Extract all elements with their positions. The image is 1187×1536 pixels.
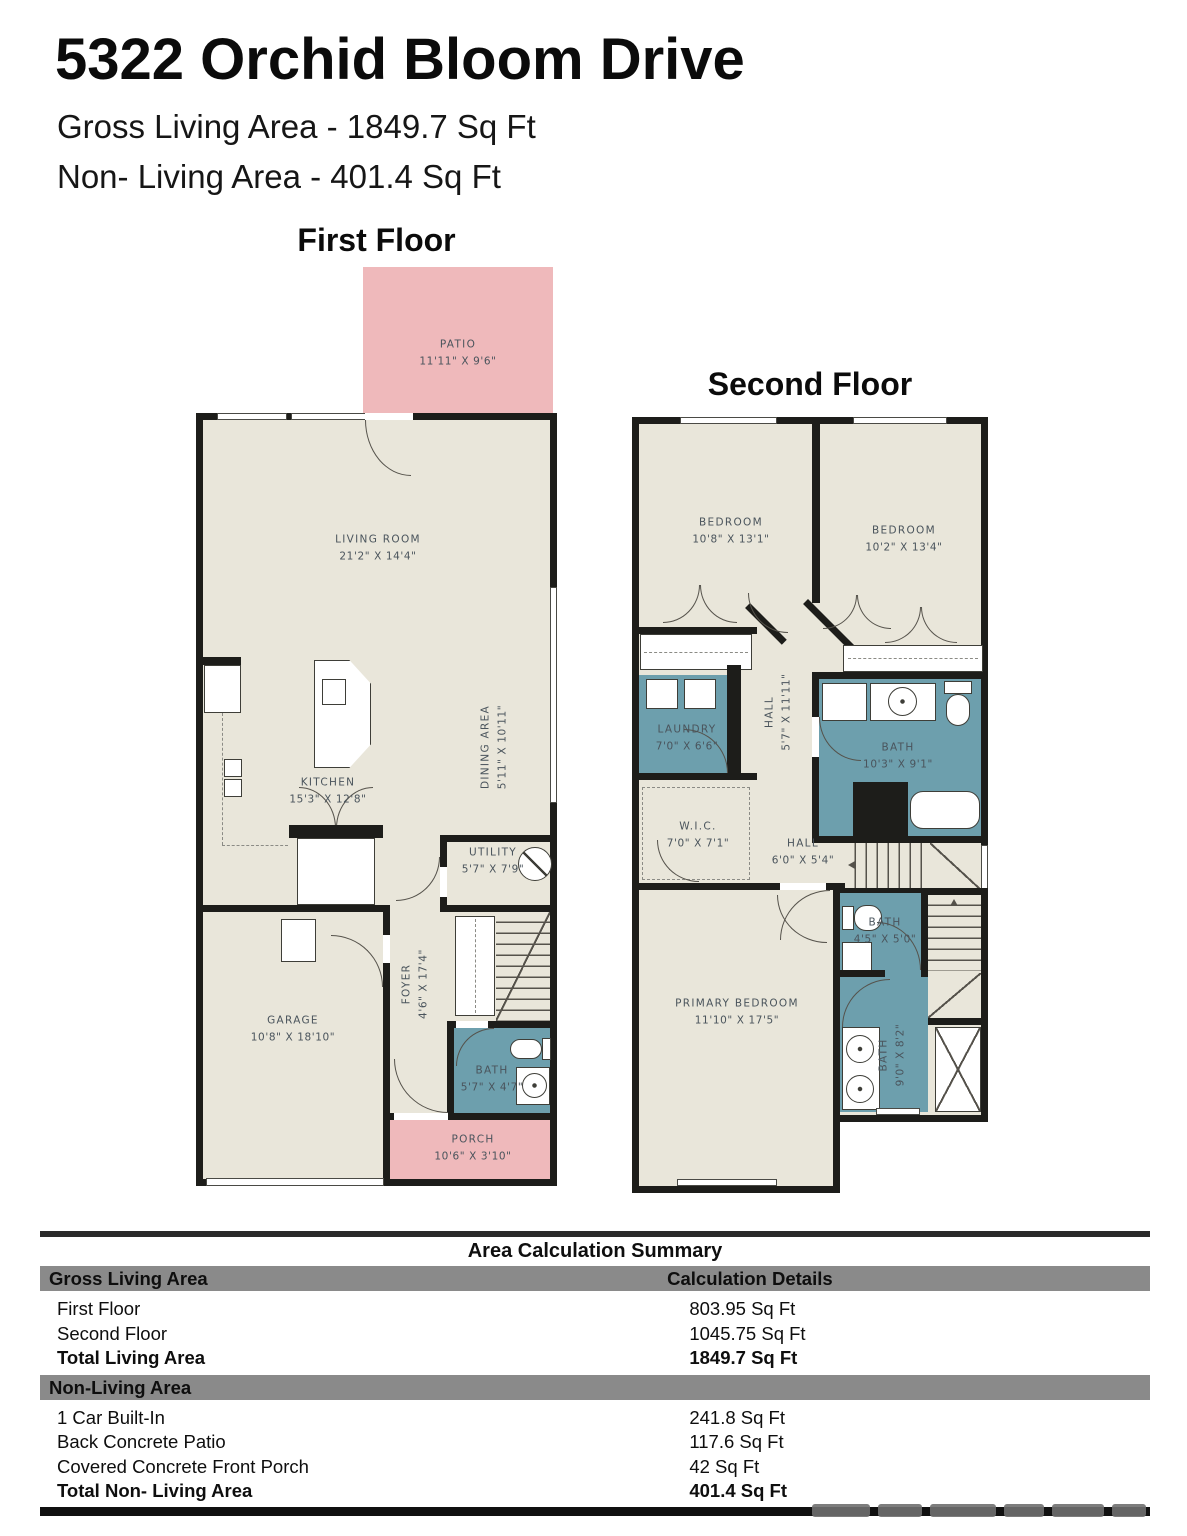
wall [812, 836, 988, 843]
table-row: Second Floor 1045.75 Sq Ft [40, 1322, 1150, 1347]
counter-dash-line [222, 713, 223, 845]
table-row: First Floor 803.95 Sq Ft [40, 1297, 1150, 1322]
room-label-foyer: FOYER 4'6" X 17'4" [402, 949, 429, 1019]
sink-icon [522, 1073, 547, 1098]
table-row: 1 Car Built-In 241.8 Sq Ft [40, 1406, 1150, 1431]
stove-icon [224, 779, 242, 797]
sink-icon [846, 1035, 874, 1063]
details-header: Calculation Details [667, 1266, 833, 1291]
page-title: 5322 Orchid Bloom Drive [55, 26, 745, 93]
room-label-dining-area: DINING AREA 5'11" X 10'11" [481, 705, 508, 789]
wall [196, 657, 241, 665]
table-row-total-non-living: Total Non- Living Area 401.4 Sq Ft [40, 1479, 1150, 1504]
table-row-total-living: Total Living Area 1849.7 Sq Ft [40, 1346, 1150, 1371]
room-label-hall-lower: HALL 6'0" X 5'4" [772, 839, 835, 866]
room-label-garage: GARAGE 10'8" X 18'10" [251, 1016, 335, 1043]
room-label-bedroom-left: BEDROOM 10'8" X 13'1" [692, 518, 769, 545]
peninsula-counter-icon [297, 838, 375, 905]
first-floor-heading: First Floor [196, 222, 557, 259]
wall [440, 835, 557, 842]
wall [812, 417, 820, 603]
sink-icon [888, 687, 917, 716]
footprint-notch [840, 1122, 988, 1193]
room-label-bath: BATH 5'7" X 4'7" [461, 1066, 524, 1093]
window-icon [550, 587, 557, 803]
front-door-opening [394, 1113, 448, 1120]
watermark [1112, 1504, 1146, 1517]
second-floor-plan: BEDROOM 10'8" X 13'1" BEDROOM 10'2" X 13… [632, 417, 988, 1193]
garage-door-icon [206, 1178, 384, 1186]
bathtub-icon [910, 791, 980, 829]
sink-icon [846, 1075, 874, 1103]
watermark [930, 1504, 996, 1517]
table-row: Covered Concrete Front Porch 42 Sq Ft [40, 1455, 1150, 1480]
window-icon [876, 1108, 920, 1115]
wall [440, 905, 557, 912]
living-header: Gross Living Area [40, 1268, 208, 1289]
area-calculation-summary: Area Calculation Summary Gross Living Ar… [40, 1231, 1150, 1516]
room-label-patio: PATIO 11'11" X 9'6" [419, 340, 496, 367]
door-opening [383, 935, 390, 963]
door-opening [440, 867, 447, 897]
gross-living-area-subtitle: Gross Living Area - 1849.7 Sq Ft [57, 108, 536, 146]
wall [196, 905, 390, 912]
watermark [1052, 1504, 1104, 1517]
non-living-header: Non-Living Area [40, 1377, 191, 1398]
table-row: Back Concrete Patio 117.6 Sq Ft [40, 1430, 1150, 1455]
window-icon [680, 417, 777, 424]
toilet-tank-icon [944, 681, 972, 694]
room-label-bath-primary: BATH 9'0" X 8'2" [879, 1024, 906, 1087]
door-opening [812, 717, 819, 757]
stairs-icon [928, 895, 981, 971]
room-label-wic: W.I.C. 7'0" X 7'1" [667, 822, 730, 849]
cabinet-icon [204, 665, 241, 713]
closet-dash-line [644, 652, 748, 653]
wall [840, 1115, 988, 1122]
summary-title: Area Calculation Summary [40, 1237, 1150, 1266]
watermark [812, 1504, 870, 1517]
toilet-icon [946, 694, 970, 726]
kitchen-island-icon [314, 660, 371, 768]
room-label-living-room: LIVING ROOM 21'2" X 14'4" [335, 535, 421, 562]
wall [289, 825, 383, 838]
table-bottom-rule [40, 1507, 1150, 1516]
wall [833, 890, 840, 1193]
window-icon [677, 1179, 777, 1186]
stairs-arrow-icon [848, 861, 855, 869]
wall [632, 627, 757, 634]
window-icon [217, 413, 287, 420]
watermark [878, 1504, 922, 1517]
watermark [1004, 1504, 1044, 1517]
washer-icon [646, 679, 678, 709]
room-label-bedroom-right: BEDROOM 10'2" X 13'4" [865, 526, 942, 553]
wall [632, 773, 757, 780]
stairs-landing [928, 973, 981, 1018]
non-living-area-subtitle: Non- Living Area - 401.4 Sq Ft [57, 158, 501, 196]
garage-closet-icon [281, 919, 316, 962]
room-label-kitchen: KITCHEN 15'3" X 12'8" [289, 778, 366, 805]
toilet-tank-icon [842, 906, 854, 930]
closet-dash-line [475, 919, 476, 1013]
island-sink-icon [322, 679, 346, 705]
room-label-bath-main: BATH 10'3" X 9'1" [863, 743, 933, 770]
non-living-header-bar: Non-Living Area [40, 1375, 1150, 1400]
living-header-bar: Gross Living Area Calculation Details [40, 1266, 1150, 1291]
stairs-landing [930, 843, 981, 890]
wall [833, 970, 885, 977]
wall [921, 1018, 988, 1025]
stairs-icon [845, 843, 925, 890]
wall [727, 665, 741, 780]
room-label-porch: PORCH 10'6" X 3'10" [434, 1135, 511, 1162]
patio-door-opening [365, 413, 413, 420]
room-label-utility: UTILITY 5'7" X 7'9" [462, 848, 525, 875]
wall [812, 672, 988, 679]
door-opening [456, 1021, 488, 1028]
room-label-hall-upper: HALL 5'7" X 11'11" [765, 673, 792, 750]
dryer-icon [684, 679, 716, 709]
stairs-diagonal [496, 912, 550, 1021]
room-label-primary-bedroom: PRIMARY BEDROOM 11'10" X 17'5" [675, 999, 799, 1026]
window-icon [981, 845, 988, 889]
room-label-bath-small: BATH 4'5" X 5'0" [854, 918, 917, 945]
toilet-tank-icon [542, 1038, 551, 1060]
chase-wall [853, 782, 908, 837]
stove-icon [224, 759, 242, 777]
counter-dash-line [222, 845, 288, 846]
bath-cabinet-icon [822, 683, 867, 721]
wall [447, 1021, 454, 1113]
window-icon [853, 417, 947, 424]
room-label-laundry: LAUNDRY 7'0" X 6'6" [656, 725, 719, 752]
first-floor-plan: PATIO 11'11" X 9'6" LIVING ROOM 21'2" X … [196, 267, 557, 1186]
stairs-arrow-icon [950, 899, 958, 906]
closet-dash-line [848, 658, 978, 659]
shower-icon [935, 1027, 981, 1112]
door-opening [780, 883, 826, 890]
toilet-icon [510, 1039, 542, 1059]
second-floor-heading: Second Floor [632, 366, 988, 403]
